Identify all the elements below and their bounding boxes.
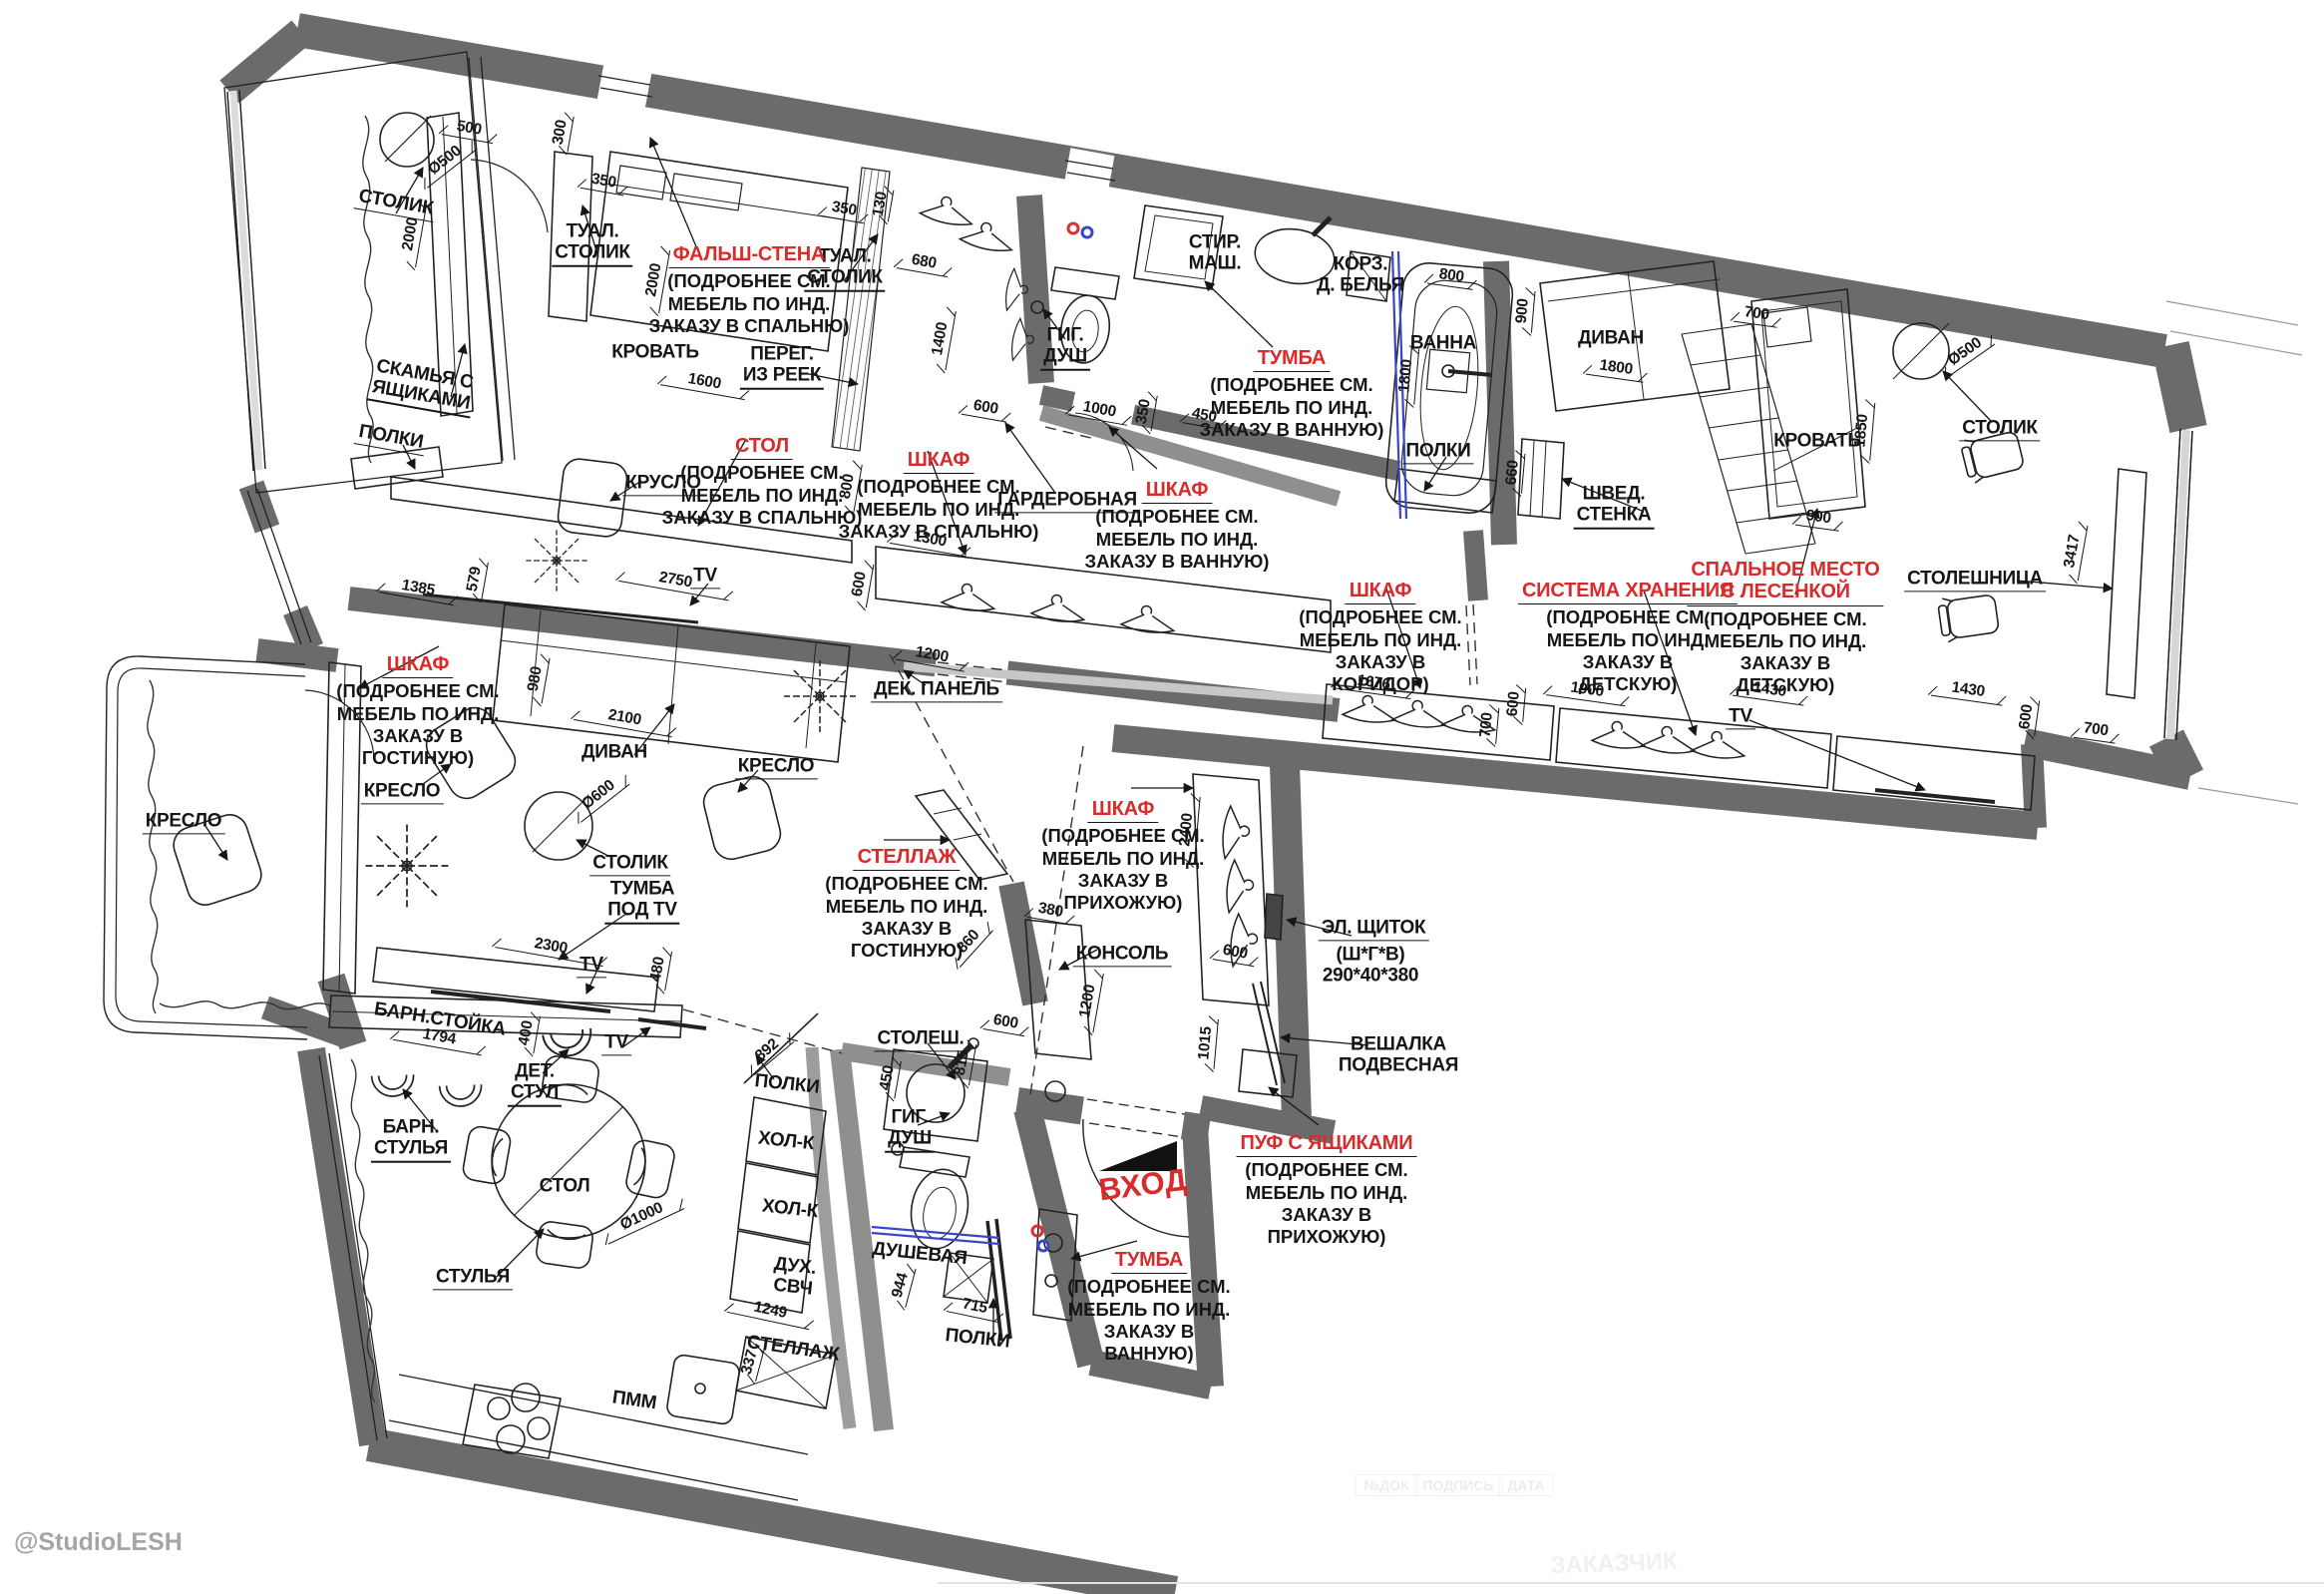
label-hyg-shower-top: ГИГ. ДУШ: [1043, 325, 1087, 368]
label-sofa-living: ДИВАН: [581, 741, 647, 762]
callout-title: ШКАФ: [383, 653, 454, 678]
label-tv-living: TV: [580, 954, 603, 975]
callout-vanity-entry: ТУМБА (ПОДРОБНЕЕ СМ. МЕБЕЛЬ ПО ИНД. ЗАКА…: [1067, 1231, 1230, 1383]
label-vanity-left: ТУАЛ. СТОЛИК: [555, 221, 629, 264]
callout-wardrobe-corridor: ШКАФ (ПОДРОБНЕЕ СМ. МЕБЕЛЬ ПО ИНД. ЗАКАЗ…: [1299, 562, 1461, 713]
label-bath-shelves: ПОЛКИ: [1405, 440, 1470, 461]
callout-body: (ПОДРОБНЕЕ СМ. МЕБЕЛЬ ПО ИНД. ЗАКАЗУ В П…: [1041, 825, 1204, 914]
callout-body: (ПОДРОБНЕЕ СМ. МЕБЕЛЬ ПО ИНД. ЗАКАЗУ В Д…: [1687, 608, 1883, 697]
callout-body: (ПОДРОБНЕЕ СМ. МЕБЕЛЬ ПО ИНД. ЗАКАЗУ В С…: [649, 270, 850, 337]
callout-loft-bed: СПАЛЬНОЕ МЕСТО С ЛЕСЕНКОЙ (ПОДРОБНЕЕ СМ.…: [1687, 541, 1883, 715]
callout-desk-bedroom: СТОЛ (ПОДРОБНЕЕ СМ. МЕБЕЛЬ ПО ИНД. ЗАКАЗ…: [662, 417, 863, 547]
bottom-divider: [938, 1582, 2324, 1584]
label-wall-hanger: ВЕШАЛКА ПОДВЕСНАЯ: [1339, 1034, 1458, 1077]
callout-body: (ПОДРОБНЕЕ СМ. МЕБЕЛЬ ПО ИНД. ЗАКАЗУ В С…: [662, 462, 863, 529]
label-laundry-basket: КОРЗ. Д. БЕЛЬЯ: [1317, 254, 1404, 297]
callout-body: (ПОДРОБНЕЕ СМ. МЕБЕЛЬ ПО ИНД. ЗАКАЗУ В К…: [1299, 606, 1461, 695]
studio-credit: @StudioLESH: [14, 1528, 183, 1557]
callout-title: ШКАФ: [1088, 798, 1159, 823]
label-oven-microwave: ДУХ. СВЧ: [771, 1254, 818, 1301]
water-points-top: [1068, 223, 1092, 237]
floor-plan-page: { "meta": { "credit": "@StudioLESH", "en…: [0, 0, 2324, 1594]
callout-title: ТУМБА: [1111, 1249, 1187, 1274]
callout-body: (ПОДРОБНЕЕ СМ. МЕБЕЛЬ ПО ИНД. ЗАКАЗУ В В…: [1200, 374, 1384, 441]
callout-body: (ПОДРОБНЕЕ СМ. МЕБЕЛЬ ПО ИНД. ЗАКАЗУ В Г…: [336, 680, 499, 769]
label-coffee-table: СТОЛИК: [592, 852, 667, 873]
label-swedish-wall: ШВЕД. СТЕНКА: [1577, 484, 1652, 527]
label-counter-bath: СТОЛЕШ.: [878, 1027, 965, 1048]
label-bed-kids: КРОВАТЬ: [1773, 430, 1861, 451]
callout-vanity-bath: ТУМБА (ПОДРОБНЕЕ СМ. МЕБЕЛЬ ПО ИНД. ЗАКА…: [1200, 329, 1384, 459]
label-tv-bedroom: TV: [693, 565, 717, 586]
label-kids-chair: ДЕТ. СТУЛ: [511, 1061, 559, 1104]
label-tv-kitchen: TV: [604, 1031, 628, 1052]
label-armchair-balcony: КРЕСЛО: [146, 810, 222, 831]
label-chairs: СТУЛЬЯ: [436, 1266, 510, 1287]
callout-title: ШКАФ: [1346, 580, 1416, 604]
dimension: 900: [1513, 289, 1535, 332]
dimension: 660: [1503, 452, 1525, 493]
label-desk-kids: СТОЛЕШНИЦА: [1907, 568, 2043, 589]
titleblock-cell-sign: ПОДПИСЬ: [1413, 1474, 1502, 1496]
titleblock-cell-date: ДАТА: [1498, 1474, 1553, 1496]
callout-title: СПАЛЬНОЕ МЕСТО С ЛЕСЕНКОЙ: [1687, 559, 1883, 606]
callout-body: (ПОДРОБНЕЕ СМ. МЕБЕЛЬ ПО ИНД. ЗАКАЗУ В В…: [1067, 1276, 1230, 1365]
callout-rack-living: СТЕЛЛАЖ (ПОДРОБНЕЕ СМ. МЕБЕЛЬ ПО ИНД. ЗА…: [825, 828, 987, 980]
label-bar-stools: БАРН. СТУЛЬЯ: [374, 1117, 448, 1160]
titleblock-cell-doc: №ДОК: [1355, 1474, 1417, 1496]
label-console: КОНСОЛЬ: [1076, 943, 1169, 964]
callout-title: ФАЛЬШ-СТЕНА: [669, 243, 830, 268]
titleblock-watermark: ЗАКАЗЧИК: [1550, 1548, 1678, 1580]
callout-title: ПУФ С ЯЩИКАМИ: [1237, 1132, 1417, 1157]
dimension: 700: [1477, 706, 1499, 743]
callout-title: СТОЛ: [731, 435, 793, 460]
label-el-panel-title: ЭЛ. ЩИТОК: [1322, 917, 1426, 938]
label-el-panel-spec: (Ш*Г*В) 290*40*380: [1323, 945, 1418, 988]
label-table-kids: СТОЛИК: [1962, 417, 2037, 438]
callout-title: СТЕЛЛАЖ: [854, 846, 961, 871]
label-washing-machine: СТИР. МАШ.: [1189, 232, 1242, 275]
callout-body: (ПОДРОБНЕЕ СМ. МЕБЕЛЬ ПО ИНД. ЗАКАЗУ В П…: [1237, 1159, 1417, 1248]
callout-cabinet-bath: ШКАФ (ПОДРОБНЕЕ СМ. МЕБЕЛЬ ПО ИНД. ЗАКАЗ…: [1085, 461, 1270, 591]
callout-body: (ПОДРОБНЕЕ СМ. МЕБЕЛЬ ПО ИНД. ЗАКАЗУ В С…: [839, 476, 1039, 543]
callout-wardrobe-living: ШКАФ (ПОДРОБНЕЕ СМ. МЕБЕЛЬ ПО ИНД. ЗАКАЗ…: [336, 635, 499, 787]
callout-title: ШКАФ: [904, 449, 974, 474]
callout-title: ТУМБА: [1254, 347, 1330, 372]
callout-pouf: ПУФ С ЯЩИКАМИ (ПОДРОБНЕЕ СМ. МЕБЕЛЬ ПО И…: [1237, 1114, 1417, 1266]
label-armchair-living-right: КРЕСЛО: [738, 755, 815, 776]
label-bathtub: ВАННА: [1410, 332, 1476, 353]
label-hyg-shower-bottom: ГИГ. ДУШ: [888, 1107, 932, 1150]
callout-wardrobe-hall: ШКАФ (ПОДРОБНЕЕ СМ. МЕБЕЛЬ ПО ИНД. ЗАКАЗ…: [1041, 780, 1204, 932]
callout-false-wall: ФАЛЬШ-СТЕНА (ПОДРОБНЕЕ СМ. МЕБЕЛЬ ПО ИНД…: [649, 225, 850, 355]
label-dining-table: СТОЛ: [540, 1175, 590, 1196]
callout-body: (ПОДРОБНЕЕ СМ. МЕБЕЛЬ ПО ИНД. ЗАКАЗУ В Г…: [825, 873, 987, 962]
label-sofa-kids: ДИВАН: [1578, 327, 1644, 348]
label-deco-panel: ДЕК. ПАНЕЛЬ: [874, 678, 999, 699]
callout-body: (ПОДРОБНЕЕ СМ. МЕБЕЛЬ ПО ИНД. ЗАКАЗУ В В…: [1085, 506, 1270, 573]
callout-wardrobe-bedroom: ШКАФ (ПОДРОБНЕЕ СМ. МЕБЕЛЬ ПО ИНД. ЗАКАЗ…: [839, 431, 1039, 561]
label-tv-stand: ТУМБА ПОД TV: [607, 879, 676, 922]
callout-title: ШКАФ: [1142, 479, 1213, 504]
